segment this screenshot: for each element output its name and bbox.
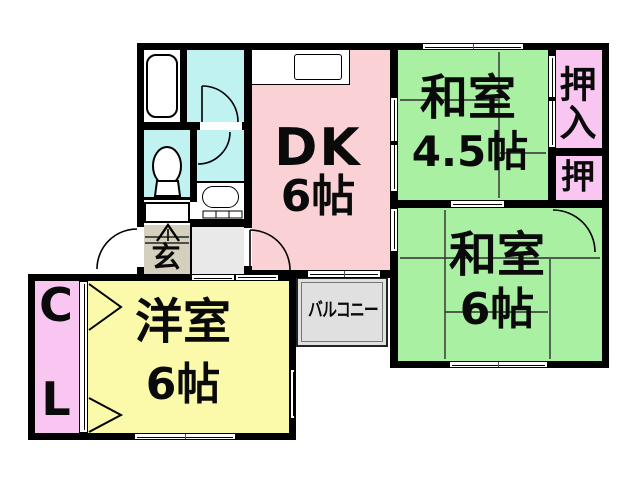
wall xyxy=(197,181,245,183)
toilet-room xyxy=(144,130,190,197)
washitsu6-room-size: 6帖 xyxy=(460,287,535,333)
cl-label-bottom: L xyxy=(41,376,70,424)
entrance-door-arc xyxy=(97,229,137,269)
wall xyxy=(190,219,252,227)
dk-room-name: DK xyxy=(274,121,361,175)
oshiire-label: 押 入 xyxy=(560,67,597,144)
balcony-label: バルコニー xyxy=(308,301,378,321)
bathtub-icon xyxy=(146,54,178,118)
window-dk-balcony xyxy=(308,270,380,278)
corridor xyxy=(192,225,244,274)
wall xyxy=(548,148,609,156)
floor-plan: DK 6帖 和室 4.5帖 押 入 押 和室 6帖 洋室 6帖 C L 玄 バル… xyxy=(0,0,640,480)
genkan-label: 玄 xyxy=(151,242,180,272)
entrance-doorway xyxy=(137,227,144,267)
washroom xyxy=(197,130,244,181)
wall xyxy=(180,48,187,128)
wall xyxy=(190,225,192,274)
washitsu6-room-name: 和室 xyxy=(449,231,545,281)
folding-door-cl xyxy=(79,281,88,433)
wall xyxy=(137,43,609,50)
cl-label-top: C xyxy=(39,282,73,330)
sliding-door-dk-washitsu45 xyxy=(390,97,398,192)
dk-room-size: 6帖 xyxy=(281,174,356,220)
dk-doorway xyxy=(244,228,252,266)
window-washitsu45-top xyxy=(423,43,523,50)
wall xyxy=(141,197,190,200)
sliding-door-washitsu45-washitsu6 xyxy=(450,200,505,208)
washitsu45-room-name: 和室 xyxy=(420,74,516,124)
kitchen-sink-icon xyxy=(294,54,342,80)
window-youshitsu-right xyxy=(290,370,295,418)
washitsu45-room-size: 4.5帖 xyxy=(412,130,528,174)
shoe-cabinet xyxy=(144,202,190,223)
youshitsu-room-name: 洋室 xyxy=(135,298,231,348)
sliding-door-oshiire xyxy=(548,55,556,148)
wall xyxy=(190,130,197,202)
washbasin-icon xyxy=(202,186,239,208)
wall xyxy=(390,250,398,368)
wall xyxy=(548,156,556,202)
bathroom xyxy=(187,50,244,122)
oshi-label: 押 xyxy=(561,160,595,195)
bathroom-doorway xyxy=(200,122,242,130)
wall xyxy=(548,43,556,55)
sliding-door-dk-washitsu6 xyxy=(390,208,398,252)
wall xyxy=(28,274,35,440)
window-youshitsu-bottom xyxy=(135,433,235,440)
window-washitsu6-bottom xyxy=(450,361,547,368)
sliding-door-hall-youshitsu-right xyxy=(236,274,278,281)
sliding-door-hall-youshitsu-left xyxy=(192,274,234,281)
youshitsu-room-size: 6帖 xyxy=(146,362,221,408)
